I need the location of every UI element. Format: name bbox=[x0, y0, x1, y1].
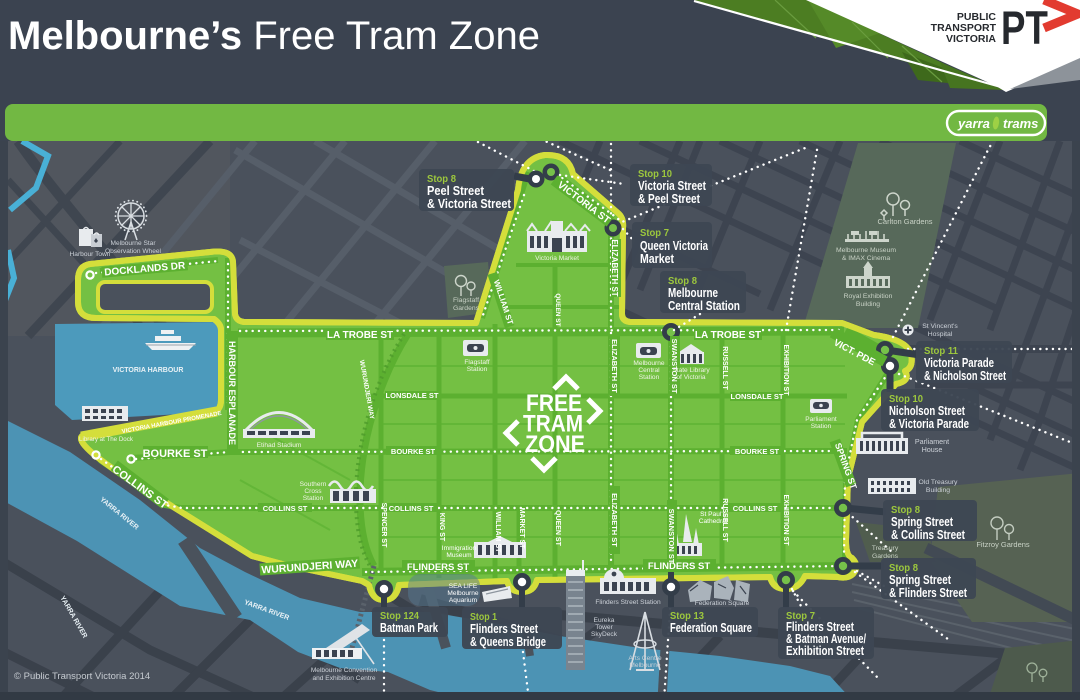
svg-text:Melbourne’s Free Tram Zone: Melbourne’s Free Tram Zone bbox=[8, 14, 540, 58]
svg-text:& Collins Street: & Collins Street bbox=[891, 528, 966, 542]
svg-text:PT: PT bbox=[1001, 2, 1048, 54]
svg-text:Melbourne: Melbourne bbox=[447, 590, 478, 597]
svg-text:Market: Market bbox=[640, 252, 675, 266]
svg-text:Observation Wheel: Observation Wheel bbox=[105, 248, 162, 255]
svg-text:& Queens Bridge: & Queens Bridge bbox=[470, 635, 546, 649]
svg-text:& Victoria Parade: & Victoria Parade bbox=[889, 417, 969, 431]
svg-text:Exhibition Street: Exhibition Street bbox=[786, 644, 865, 658]
svg-text:Spring Street: Spring Street bbox=[889, 573, 952, 587]
svg-text:Victoria Street: Victoria Street bbox=[638, 179, 707, 193]
svg-text:EXHIBITION ST: EXHIBITION ST bbox=[782, 495, 789, 547]
svg-text:St Vincent's: St Vincent's bbox=[922, 323, 958, 330]
svg-text:QUEEN ST: QUEEN ST bbox=[554, 510, 561, 547]
svg-text:and Exhibition Centre: and Exhibition Centre bbox=[312, 675, 375, 682]
svg-text:Stop 7: Stop 7 bbox=[640, 228, 669, 239]
svg-text:COLLINS ST: COLLINS ST bbox=[733, 504, 778, 513]
svg-text:Victoria Market: Victoria Market bbox=[535, 255, 579, 262]
svg-text:Fitzroy Gardens: Fitzroy Gardens bbox=[976, 540, 1030, 549]
svg-text:Melbourne: Melbourne bbox=[633, 360, 664, 367]
svg-text:HARBOUR ESPLANADE: HARBOUR ESPLANADE bbox=[227, 341, 237, 445]
svg-text:Building: Building bbox=[856, 301, 880, 308]
svg-text:Station: Station bbox=[639, 374, 660, 381]
svg-text:MARKET ST: MARKET ST bbox=[518, 508, 525, 550]
svg-text:Queen Victoria: Queen Victoria bbox=[640, 239, 709, 253]
svg-text:Museum: Museum bbox=[446, 552, 472, 559]
svg-text:& IMAX Cinema: & IMAX Cinema bbox=[842, 255, 891, 262]
svg-text:LA TROBE ST: LA TROBE ST bbox=[695, 330, 761, 341]
svg-text:Hospital: Hospital bbox=[928, 331, 953, 338]
svg-text:yarra: yarra bbox=[957, 116, 990, 131]
svg-text:Building: Building bbox=[926, 487, 950, 494]
svg-text:ELIZABETH ST: ELIZABETH ST bbox=[610, 493, 619, 547]
svg-text:Federation Square: Federation Square bbox=[670, 621, 752, 635]
svg-text:ELIZABETH ST: ELIZABETH ST bbox=[610, 339, 619, 393]
svg-text:Station: Station bbox=[811, 423, 832, 430]
svg-text:Melbourne Museum: Melbourne Museum bbox=[836, 247, 896, 254]
svg-text:Batman Park: Batman Park bbox=[380, 621, 438, 635]
svg-text:Southern: Southern bbox=[300, 481, 327, 488]
svg-text:& Peel Street: & Peel Street bbox=[638, 192, 701, 206]
svg-text:LONSDALE ST: LONSDALE ST bbox=[731, 392, 784, 401]
svg-text:trams: trams bbox=[1003, 116, 1038, 131]
svg-text:Tower: Tower bbox=[595, 624, 613, 631]
svg-text:QUEEN ST: QUEEN ST bbox=[554, 293, 561, 326]
svg-text:SEA LIFE: SEA LIFE bbox=[449, 583, 478, 590]
svg-text:EXHIBITION ST: EXHIBITION ST bbox=[782, 345, 789, 397]
svg-text:Flagstaff: Flagstaff bbox=[464, 359, 489, 366]
svg-text:KING ST: KING ST bbox=[438, 513, 445, 542]
svg-text:Melbourne Convention: Melbourne Convention bbox=[311, 667, 378, 674]
svg-text:St Paul's: St Paul's bbox=[700, 511, 727, 518]
svg-text:VICTORIA: VICTORIA bbox=[946, 33, 996, 45]
svg-text:Immigration: Immigration bbox=[442, 545, 477, 552]
svg-text:BOURKE ST: BOURKE ST bbox=[735, 447, 780, 456]
svg-text:Cathedral: Cathedral bbox=[699, 518, 728, 525]
svg-text:Spring Street: Spring Street bbox=[891, 515, 954, 529]
svg-text:Station: Station bbox=[467, 366, 488, 373]
svg-text:Aquarium: Aquarium bbox=[449, 597, 478, 604]
svg-text:Central Station: Central Station bbox=[668, 299, 740, 313]
svg-text:Gardens: Gardens bbox=[453, 305, 480, 312]
svg-text:Royal Exhibition: Royal Exhibition bbox=[844, 293, 893, 300]
svg-text:VICTORIA HARBOUR: VICTORIA HARBOUR bbox=[113, 367, 184, 374]
svg-text:FLINDERS ST: FLINDERS ST bbox=[407, 562, 469, 573]
svg-text:Flinders Street: Flinders Street bbox=[470, 622, 539, 636]
svg-text:LONSDALE ST: LONSDALE ST bbox=[386, 391, 439, 400]
svg-text:BOURKE ST: BOURKE ST bbox=[143, 448, 208, 460]
svg-text:Eureka: Eureka bbox=[594, 617, 615, 624]
svg-text:ELIZABETH ST: ELIZABETH ST bbox=[610, 239, 619, 296]
svg-text:Parliament: Parliament bbox=[805, 416, 837, 423]
svg-text:ZONE: ZONE bbox=[525, 431, 585, 458]
svg-text:of Victoria: of Victoria bbox=[676, 374, 706, 381]
svg-text:Melbourne Star: Melbourne Star bbox=[110, 240, 156, 247]
svg-text:SWANSTON ST: SWANSTON ST bbox=[667, 509, 676, 564]
svg-text:COLLINS ST: COLLINS ST bbox=[263, 504, 308, 513]
svg-text:RUSSELL ST: RUSSELL ST bbox=[721, 346, 728, 390]
svg-text:© Public Transport Victoria 20: © Public Transport Victoria 2014 bbox=[14, 671, 150, 682]
svg-text:Treasury: Treasury bbox=[872, 545, 899, 552]
svg-text:Melbourne: Melbourne bbox=[668, 286, 718, 300]
svg-text:Federation Square: Federation Square bbox=[695, 600, 750, 607]
svg-text:& Nicholson Street: & Nicholson Street bbox=[924, 369, 1007, 383]
svg-text:Station: Station bbox=[303, 495, 324, 502]
svg-text:Library at The Dock: Library at The Dock bbox=[79, 436, 134, 443]
svg-text:Flagstaff: Flagstaff bbox=[453, 297, 479, 304]
svg-text:Carlton Gardens: Carlton Gardens bbox=[877, 217, 932, 226]
svg-text:Flinders Street Station: Flinders Street Station bbox=[595, 599, 661, 606]
svg-text:WILLIAM ST: WILLIAM ST bbox=[494, 512, 501, 554]
svg-text:Victoria Parade: Victoria Parade bbox=[924, 356, 994, 370]
svg-text:Melbourne: Melbourne bbox=[629, 662, 660, 669]
svg-text:Cross: Cross bbox=[304, 488, 322, 495]
svg-text:SPENCER ST: SPENCER ST bbox=[380, 503, 387, 548]
svg-text:FLINDERS ST: FLINDERS ST bbox=[648, 561, 710, 572]
svg-text:House: House bbox=[922, 445, 943, 454]
svg-text:Arts Centre: Arts Centre bbox=[628, 655, 662, 662]
svg-text:LA TROBE ST: LA TROBE ST bbox=[327, 330, 393, 341]
svg-text:Central: Central bbox=[638, 367, 660, 374]
svg-text:Peel Street: Peel Street bbox=[427, 184, 485, 198]
svg-text:COLLINS ST: COLLINS ST bbox=[389, 504, 434, 513]
svg-text:& Victoria Street: & Victoria Street bbox=[427, 197, 512, 211]
svg-text:Etihad Stadium: Etihad Stadium bbox=[257, 442, 302, 449]
svg-text:SkyDeck: SkyDeck bbox=[591, 631, 618, 638]
svg-text:State Library: State Library bbox=[672, 367, 710, 374]
svg-text:Nicholson Street: Nicholson Street bbox=[889, 404, 966, 418]
svg-text:BOURKE ST: BOURKE ST bbox=[391, 447, 436, 456]
svg-text:Old Treasury: Old Treasury bbox=[919, 479, 959, 486]
svg-text:& Flinders Street: & Flinders Street bbox=[889, 586, 968, 600]
